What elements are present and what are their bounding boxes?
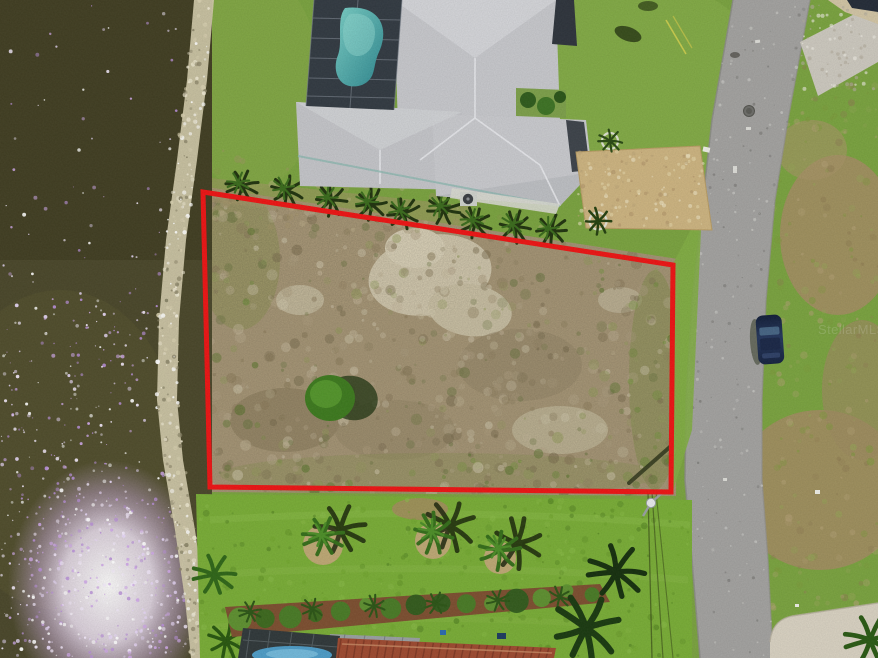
aerial-photo: StellarMLS [0,0,878,658]
